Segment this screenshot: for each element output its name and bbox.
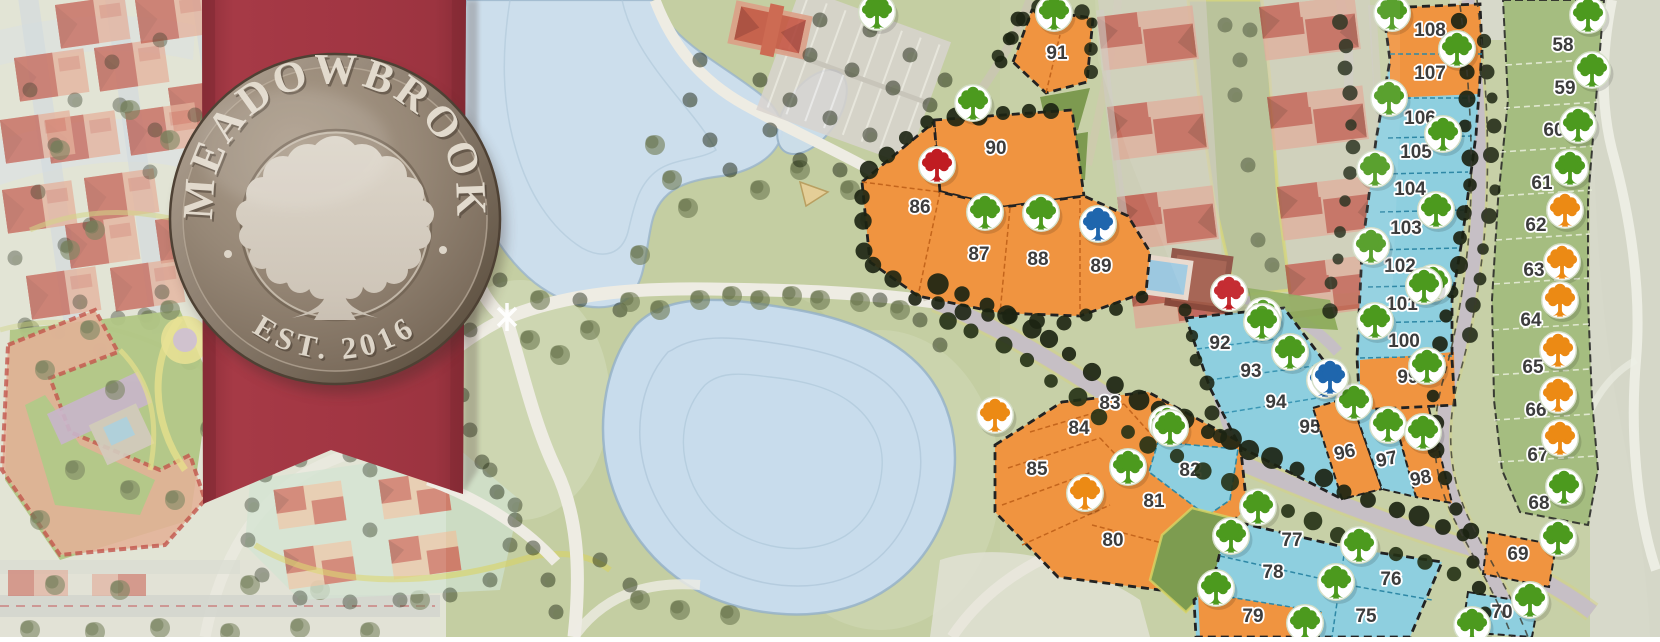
svg-text:75: 75 (1355, 606, 1377, 627)
svg-text:58: 58 (1552, 35, 1573, 56)
svg-text:93: 93 (1240, 361, 1261, 382)
svg-text:97: 97 (1374, 447, 1399, 472)
svg-text:68: 68 (1528, 493, 1549, 514)
svg-text:92: 92 (1209, 333, 1230, 354)
svg-text:104: 104 (1394, 179, 1426, 200)
svg-text:98: 98 (1408, 466, 1433, 491)
svg-text:85: 85 (1026, 459, 1048, 480)
svg-text:88: 88 (1027, 249, 1048, 270)
svg-text:78: 78 (1262, 562, 1283, 583)
svg-text:77: 77 (1281, 530, 1302, 551)
svg-text:94: 94 (1265, 392, 1287, 413)
svg-text:87: 87 (968, 244, 989, 265)
svg-text:90: 90 (985, 138, 1006, 159)
svg-text:105: 105 (1400, 142, 1432, 163)
svg-text:81: 81 (1143, 491, 1165, 512)
svg-text:91: 91 (1046, 43, 1068, 64)
svg-text:86: 86 (909, 197, 930, 218)
svg-text:79: 79 (1242, 606, 1263, 627)
svg-text:69: 69 (1507, 544, 1528, 565)
svg-text:108: 108 (1414, 20, 1446, 41)
svg-text:64: 64 (1520, 310, 1542, 331)
svg-text:107: 107 (1414, 63, 1446, 84)
svg-text:76: 76 (1380, 569, 1401, 590)
svg-text:84: 84 (1068, 418, 1090, 439)
svg-text:80: 80 (1102, 530, 1123, 551)
svg-text:89: 89 (1090, 256, 1111, 277)
svg-text:62: 62 (1525, 215, 1546, 236)
svg-text:63: 63 (1523, 260, 1544, 281)
svg-text:59: 59 (1554, 78, 1575, 99)
svg-text:65: 65 (1522, 357, 1544, 378)
svg-text:61: 61 (1531, 173, 1553, 194)
svg-text:96: 96 (1332, 440, 1357, 465)
